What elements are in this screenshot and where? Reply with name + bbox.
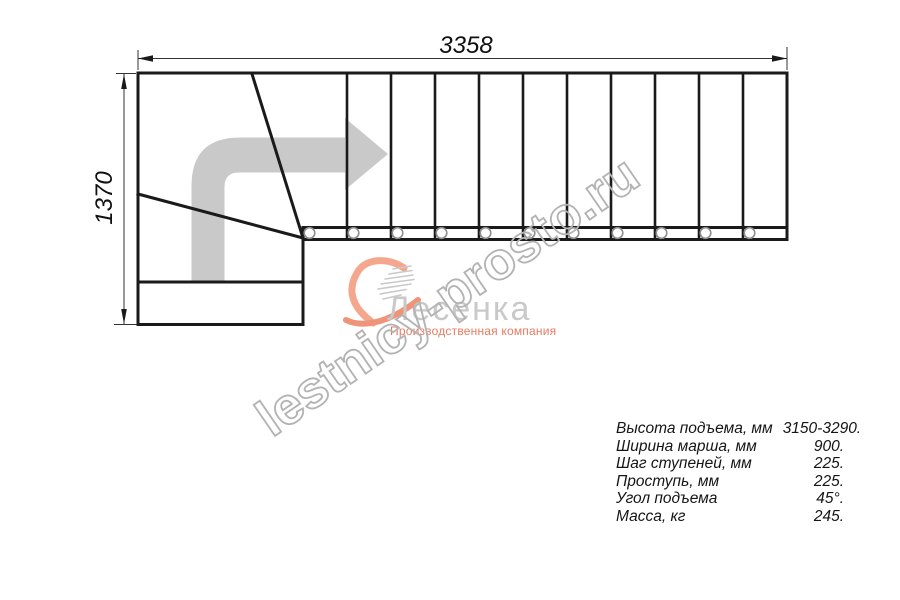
spec-value: 3150-3290. bbox=[773, 420, 861, 438]
baluster-circle bbox=[304, 228, 315, 239]
spec-value: 45°. bbox=[806, 490, 844, 508]
dimension-arrowhead bbox=[121, 309, 127, 324]
baluster-circle bbox=[348, 228, 359, 239]
spec-label: Масса, кг bbox=[616, 508, 685, 526]
baluster-circle bbox=[612, 228, 623, 239]
spec-label: Высота подъема, мм bbox=[616, 420, 773, 438]
spec-label: Проступь, мм bbox=[616, 473, 719, 491]
baluster-circle bbox=[392, 228, 403, 239]
baluster-circle bbox=[700, 228, 711, 239]
spec-row: Шаг ступеней, мм 225. bbox=[616, 455, 844, 473]
left-dimension-label: 1370 bbox=[91, 171, 118, 225]
spec-value: 900. bbox=[804, 438, 844, 456]
dimension-arrowhead bbox=[138, 55, 153, 61]
spec-row: Высота подъема, мм 3150-3290. bbox=[616, 420, 844, 438]
spec-list: Высота подъема, мм 3150-3290. Ширина мар… bbox=[616, 420, 844, 525]
dimension-arrowhead bbox=[121, 74, 127, 89]
spec-value: 225. bbox=[804, 473, 844, 491]
spec-value: 225. bbox=[804, 455, 844, 473]
baluster-circle bbox=[436, 228, 447, 239]
watermark-text: lestnicy-prosto.ru bbox=[246, 145, 650, 448]
spec-value: 245. bbox=[804, 508, 844, 526]
spec-row: Ширина марша, мм 900. bbox=[616, 438, 844, 456]
spec-row: Масса, кг 245. bbox=[616, 508, 844, 526]
baluster-circle bbox=[744, 228, 755, 239]
spec-label: Угол подъема bbox=[616, 490, 717, 508]
spec-label: Ширина марша, мм bbox=[616, 438, 757, 456]
spec-row: Угол подъема 45°. bbox=[616, 490, 844, 508]
dimension-arrowhead bbox=[772, 55, 787, 61]
spec-row: Проступь, мм 225. bbox=[616, 473, 844, 491]
baluster-circle bbox=[656, 228, 667, 239]
spec-label: Шаг ступеней, мм bbox=[616, 455, 752, 473]
top-dimension-label: 3358 bbox=[439, 32, 493, 59]
